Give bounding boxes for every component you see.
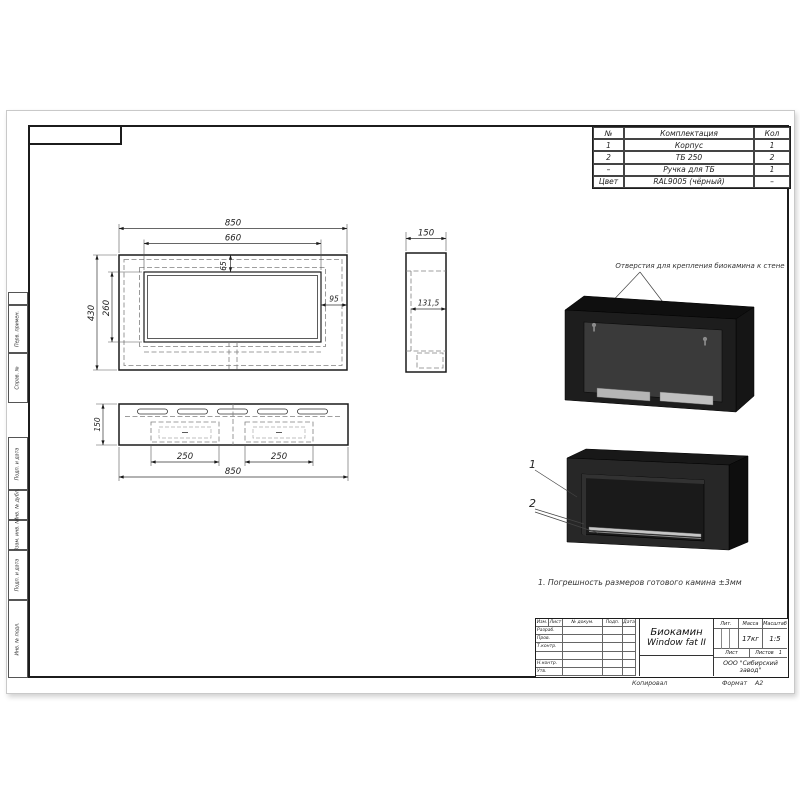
dim-bottom-burner-right: 250 xyxy=(271,452,287,462)
tb-row-prov: Пров. xyxy=(536,635,563,643)
margin-cell-sprav-no: Справ. № xyxy=(8,353,28,403)
front-view: 850 660 65 430 260 95 xyxy=(87,219,347,371)
mounting-note: Отверстия для крепления биокамина к стен… xyxy=(615,262,784,270)
dim-front-opening-height: 260 xyxy=(102,300,112,316)
table-cell: 1 xyxy=(754,164,790,176)
dim-bottom-burner-left: 250 xyxy=(177,452,193,462)
sheet-label: Лист xyxy=(714,649,750,657)
dim-front-width: 850 xyxy=(225,219,241,229)
table-cell: Корпус xyxy=(624,139,754,151)
tb-row-utv: Утв. xyxy=(536,668,563,676)
tb-header-list: Лист xyxy=(549,619,563,627)
dim-front-right-offset: 95 xyxy=(329,295,339,304)
title-block-name: Биокамин Window fat II xyxy=(639,619,713,676)
callout-2: 2 xyxy=(529,497,536,510)
tolerance-note: 1. Погрешность размеров готового камина … xyxy=(538,578,742,587)
parts-header-no: № xyxy=(593,127,624,139)
tb-row-tkontr: Т.контр. xyxy=(536,643,563,651)
tb-row-blank xyxy=(536,652,563,660)
tb-header-docnum: № докум. xyxy=(563,619,603,627)
table-cell: Ручка для ТБ xyxy=(624,164,754,176)
below-frame-labels: Копировал Формат А2 xyxy=(0,680,800,692)
margin-cell-vzam-inv: Взам. инв. № xyxy=(8,520,28,550)
tb-header-data: Дата xyxy=(623,619,636,627)
dim-side-inner-depth: 131,5 xyxy=(418,299,440,308)
dim-bottom-depth: 150 xyxy=(93,417,102,432)
company-name-line1: ООО "Сибирский xyxy=(723,660,778,667)
parts-header-qty: Кол xyxy=(754,127,790,139)
dim-bottom-width: 850 xyxy=(225,467,241,477)
tb-row-nkontr: Н.контр. xyxy=(536,660,563,668)
margin-cell-empty xyxy=(8,292,28,305)
document-title-line2: Window fat II xyxy=(647,638,706,648)
isometric-views: Отверстия для крепления биокамина к стен… xyxy=(500,250,800,595)
table-cell: ТБ 250 xyxy=(624,151,754,163)
scale-label: Масштаб xyxy=(763,619,787,629)
title-block-revision-table: Изм. Лист № докум. Подп. Дата Разраб. Пр… xyxy=(536,619,639,676)
orthographic-views: 850 660 65 430 260 95 xyxy=(85,205,460,495)
copied-label: Копировал xyxy=(632,680,667,687)
callout-1: 1 xyxy=(529,458,536,471)
table-cell: Цвет xyxy=(593,176,624,188)
title-block-right: Лит. Масса 17кг Масштаб 1:5 Лист xyxy=(713,619,787,676)
render-front-view xyxy=(567,449,748,550)
margin-cell-podp-data-1: Подп. и дата xyxy=(8,437,28,490)
parts-header-name: Комплектация xyxy=(624,127,754,139)
table-cell: – xyxy=(593,164,624,176)
sheets-label: Листов xyxy=(755,650,774,656)
top-left-stamp-box xyxy=(28,125,122,145)
dim-side-depth: 150 xyxy=(418,229,434,239)
margin-cell-podp-data-2: Подп. и дата xyxy=(8,550,28,600)
table-cell: – xyxy=(754,176,790,188)
format-value: А2 xyxy=(755,680,763,687)
parts-table: № Комплектация Кол 1 Корпус 1 2 ТБ 250 2… xyxy=(592,126,791,189)
dim-front-height: 430 xyxy=(87,305,97,321)
margin-cell-inv-podl: Инв. № подл. xyxy=(8,600,28,678)
document-title-line1: Биокамин xyxy=(650,627,702,638)
table-cell: 2 xyxy=(593,151,624,163)
dim-front-opening-width: 660 xyxy=(225,234,241,244)
table-cell: 1 xyxy=(593,139,624,151)
table-cell: RAL9005 (чёрный) xyxy=(624,176,754,188)
margin-cell-perv-primen: Перв. примен. xyxy=(8,305,28,353)
scale-value: 1:5 xyxy=(763,629,787,649)
mass-label: Масса xyxy=(739,619,762,629)
lit-label: Лит. xyxy=(714,619,738,629)
sheets-value: 1 xyxy=(779,650,782,656)
tb-row-razrab: Разраб. xyxy=(536,627,563,635)
side-view: 150 131,5 xyxy=(406,229,446,373)
render-back-view xyxy=(565,296,754,412)
table-cell: 1 xyxy=(754,139,790,151)
tb-header-izm: Изм. xyxy=(536,619,549,627)
drawing-sheet-canvas: Перв. примен. Справ. № Подп. и дата Инв.… xyxy=(0,0,800,800)
dim-front-opening-top-offset: 65 xyxy=(219,261,228,271)
title-block: Изм. Лист № докум. Подп. Дата Разраб. Пр… xyxy=(535,618,789,678)
table-cell: 2 xyxy=(754,151,790,163)
tb-header-podp: Подп. xyxy=(603,619,623,627)
bottom-view: 150 250 250 850 xyxy=(93,404,348,481)
format-label: Формат xyxy=(722,680,747,687)
mass-value: 17кг xyxy=(739,629,762,649)
margin-cell-inv-dubl: Инв. № дубл. xyxy=(8,490,28,520)
company-name-line2: завод" xyxy=(740,667,762,674)
